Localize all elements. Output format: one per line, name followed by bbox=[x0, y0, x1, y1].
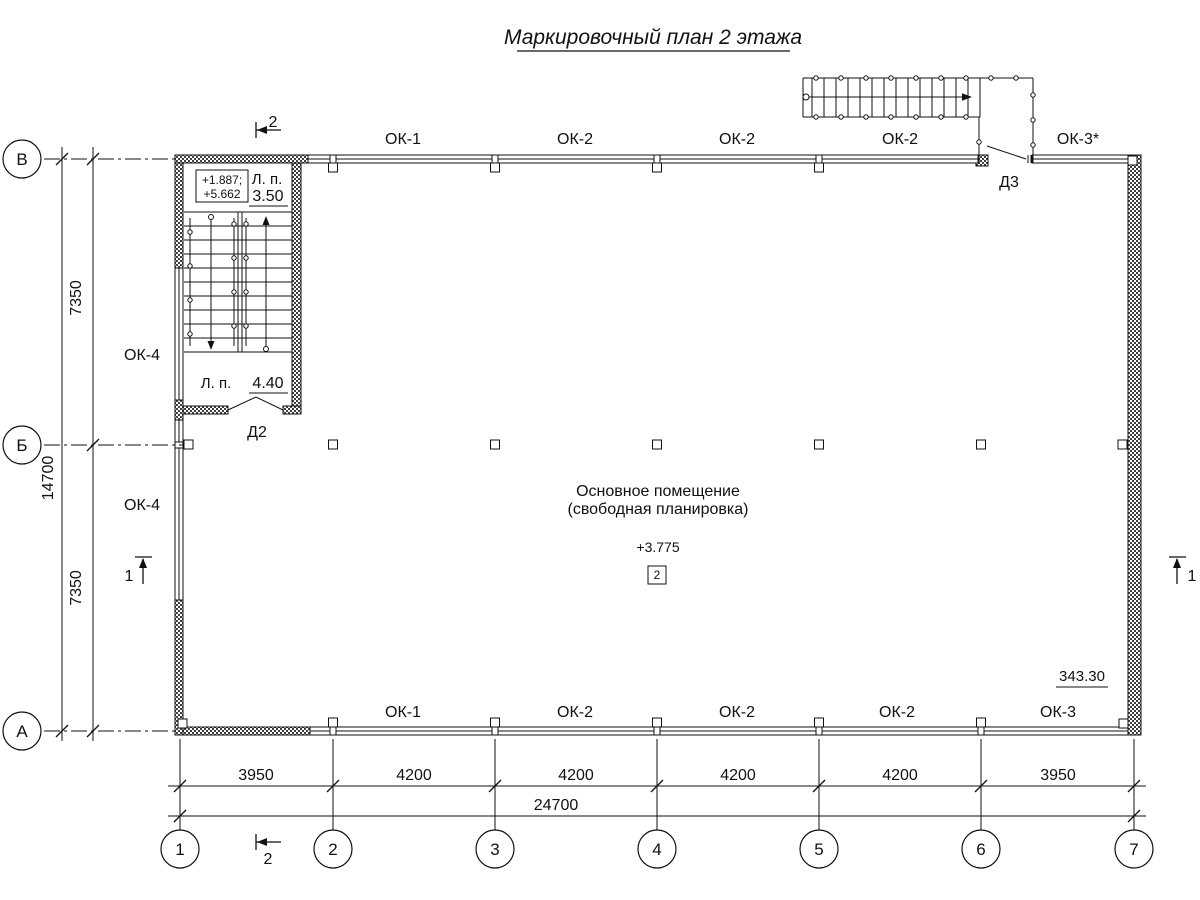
dim-7350-lower: 7350 bbox=[68, 570, 85, 606]
stair-elevation-1: +1.887; bbox=[202, 173, 242, 187]
stairwell-bottom-wall-left bbox=[183, 406, 228, 414]
window-label-top-5: ОК-3* bbox=[1057, 131, 1099, 148]
grid-row-b: Б bbox=[16, 436, 27, 455]
window-labels-bottom: ОК-1 ОК-2 ОК-2 ОК-2 ОК-3 bbox=[385, 704, 1076, 721]
stair-labels: +1.887; +5.662 Л. п. 3.50 Л. п. 4.40 Д2 … bbox=[201, 171, 1019, 441]
room-name-line2: (свободная планировка) bbox=[568, 501, 749, 518]
grid-col-2: 2 bbox=[328, 840, 337, 859]
grid-col-5: 5 bbox=[814, 840, 823, 859]
section-marker-1-right: 1 bbox=[1169, 557, 1197, 585]
stair-direction-up bbox=[263, 216, 270, 352]
dim-3950-2: 3950 bbox=[1040, 767, 1076, 784]
wall-left-lower bbox=[175, 600, 183, 735]
external-stair-direction bbox=[803, 93, 972, 101]
window-label-bottom-2: ОК-2 bbox=[557, 704, 593, 721]
main-stair bbox=[184, 170, 292, 410]
landing-rails bbox=[979, 78, 1033, 163]
grid-col-7: 7 bbox=[1129, 840, 1138, 859]
grid-col-4: 4 bbox=[652, 840, 661, 859]
window-label-top-1: ОК-1 bbox=[385, 131, 421, 148]
upper-landing-value: 3.50 bbox=[252, 188, 283, 205]
dim-4200-1: 4200 bbox=[396, 767, 432, 784]
door-d2-label: Д2 bbox=[247, 424, 267, 441]
section-marker-1-left: 1 bbox=[125, 557, 152, 585]
external-stair-balusters bbox=[814, 76, 1035, 147]
dim-total-left: 14700 bbox=[40, 456, 57, 501]
door-d2-leaf bbox=[228, 397, 283, 410]
section-marker-2-bottom: 2 bbox=[256, 834, 281, 868]
column-markers bbox=[175, 155, 1137, 735]
dim-3950-1: 3950 bbox=[238, 767, 274, 784]
section-2-top-label: 2 bbox=[269, 114, 278, 131]
lower-landing-value: 4.40 bbox=[252, 375, 283, 392]
window-label-top-4: ОК-2 bbox=[882, 131, 918, 148]
window-label-top-3: ОК-2 bbox=[719, 131, 755, 148]
window-label-top-2: ОК-2 bbox=[557, 131, 593, 148]
section-marker-2-top: 2 bbox=[256, 114, 281, 138]
wall-bottom-left bbox=[183, 727, 310, 735]
window-labels-left: ОК-4 ОК-4 bbox=[124, 347, 160, 514]
external-stair bbox=[803, 76, 1035, 163]
room-name-line1: Основное помещение bbox=[576, 483, 740, 500]
wall-right bbox=[1128, 155, 1141, 735]
room-elevation: +3.775 bbox=[636, 539, 679, 555]
window-label-bottom-1: ОК-1 bbox=[385, 704, 421, 721]
section-1-right-label: 1 bbox=[1188, 568, 1197, 585]
left-dim-lines bbox=[62, 147, 93, 741]
floor-plan-sheet: Маркировочный план 2 этажа bbox=[0, 0, 1200, 900]
grid-row-v: В bbox=[16, 150, 27, 169]
dim-total-bottom: 24700 bbox=[534, 797, 579, 814]
room-labels: Основное помещение (свободная планировка… bbox=[568, 483, 1108, 687]
window-label-bottom-4: ОК-2 bbox=[879, 704, 915, 721]
grid-col-3: 3 bbox=[490, 840, 499, 859]
section-2-bottom-label: 2 bbox=[264, 851, 273, 868]
dim-4200-4: 4200 bbox=[882, 767, 918, 784]
wall-top-stairwell bbox=[175, 155, 308, 163]
window-label-left-1: ОК-4 bbox=[124, 347, 160, 364]
grid-col-6: 6 bbox=[976, 840, 985, 859]
window-labels-top: ОК-1 ОК-2 ОК-2 ОК-2 ОК-3* bbox=[385, 131, 1099, 148]
room-number: 2 bbox=[654, 568, 661, 582]
dim-7350-upper: 7350 bbox=[68, 280, 85, 316]
window-label-left-2: ОК-4 bbox=[124, 497, 160, 514]
grid-col-1: 1 bbox=[175, 840, 184, 859]
section-1-left-label: 1 bbox=[125, 568, 134, 585]
dim-4200-3: 4200 bbox=[720, 767, 756, 784]
page-title: Маркировочный план 2 этажа bbox=[504, 26, 802, 49]
floor-plan-drawing: Маркировочный план 2 этажа bbox=[0, 0, 1200, 900]
stairwell-partition bbox=[292, 163, 301, 414]
stairwell-bottom-wall-right bbox=[283, 406, 301, 414]
window-label-bottom-5: ОК-3 bbox=[1040, 704, 1076, 721]
stair-balusters bbox=[188, 222, 248, 336]
door-d3-leaf bbox=[987, 146, 1026, 159]
stair-elevation-2: +5.662 bbox=[203, 187, 240, 201]
dim-4200-2: 4200 bbox=[558, 767, 594, 784]
room-area: 343.30 bbox=[1059, 668, 1105, 685]
left-dimensions bbox=[3, 140, 184, 750]
wall-left-stub bbox=[175, 400, 183, 420]
grid-row-a: А bbox=[16, 722, 28, 741]
row-axis-lines bbox=[44, 159, 184, 731]
wall-left-upper bbox=[175, 163, 183, 268]
window-label-bottom-3: ОК-2 bbox=[719, 704, 755, 721]
upper-landing-label: Л. п. bbox=[252, 171, 282, 188]
door-d3-label: Д3 bbox=[999, 174, 1019, 191]
lower-landing-label: Л. п. bbox=[201, 375, 231, 392]
